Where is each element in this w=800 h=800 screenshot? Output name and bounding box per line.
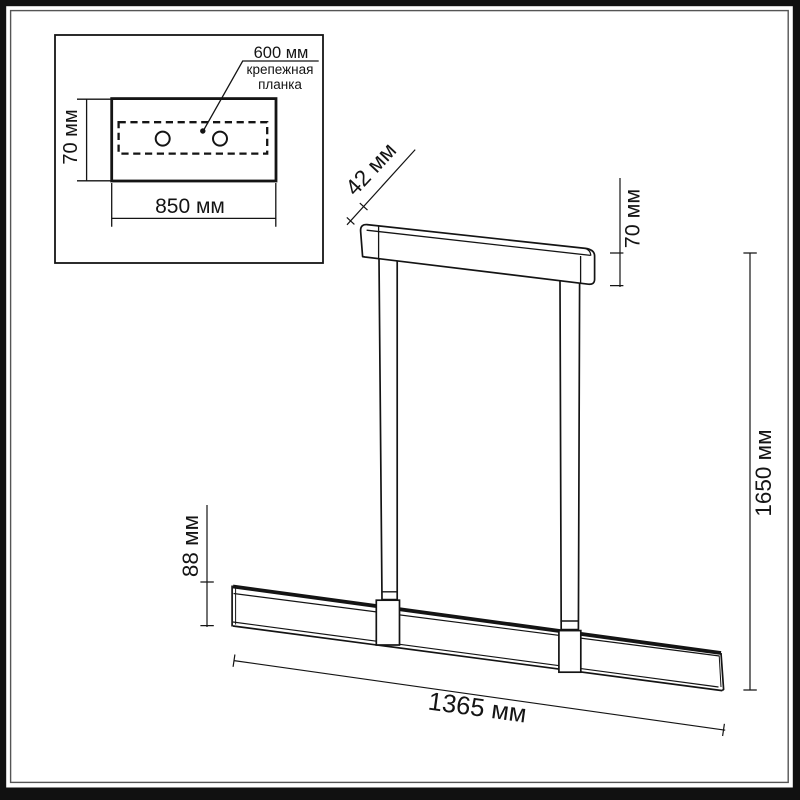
rod-right-holder-block	[559, 631, 581, 673]
bar-bottom-edge-outer	[233, 626, 722, 691]
dim-label-bar-height: 88 мм	[180, 508, 204, 584]
rod-right-lines	[560, 281, 580, 630]
rod-left-sleeve	[382, 592, 398, 600]
dim-label-plate-width: 850 мм	[145, 196, 235, 217]
frame-left	[0, 0, 6, 800]
mounting-plate-caption: крепежная планка	[232, 62, 328, 92]
dim-label-hole-spacing: 600 мм	[236, 45, 326, 62]
frame-right	[793, 0, 800, 800]
suspension-rod-left	[376, 259, 399, 645]
frame-top	[0, 0, 800, 6]
fixture-line-art	[0, 0, 800, 800]
bar-top-band-line	[234, 594, 720, 657]
rod-left-holder-block	[376, 600, 399, 645]
canopy	[361, 225, 595, 285]
rod-left-lines	[379, 259, 397, 601]
bar-bottom-edge-inner	[233, 622, 719, 687]
dim-label-canopy-height: 70 мм	[623, 184, 646, 254]
frame-bottom	[0, 788, 800, 800]
rod-right-sleeve	[560, 621, 579, 629]
light-bar	[232, 586, 723, 691]
suspension-rod-right	[559, 281, 581, 672]
bar-right-end	[721, 653, 724, 691]
drawing-canvas: 600 мм крепежная планка 70 мм 850 мм 42 …	[0, 0, 800, 800]
dim-label-plate-height: 70 мм	[61, 102, 83, 172]
bar-top-edge-thick	[233, 587, 721, 654]
dim-label-overall-height: 1650 мм	[753, 423, 777, 523]
